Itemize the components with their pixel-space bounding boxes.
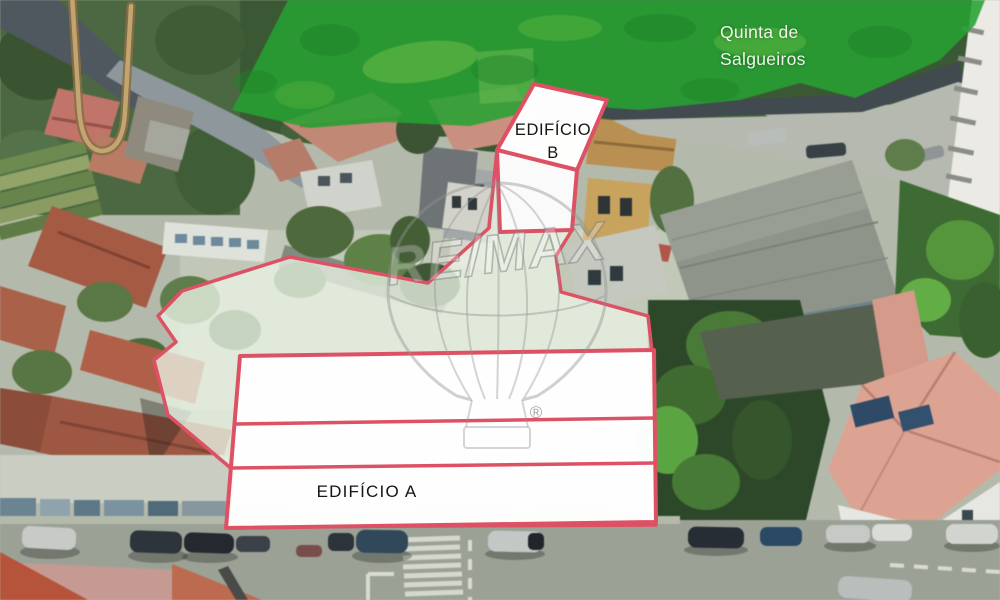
watermark-registered-mark: ® [530, 403, 543, 422]
building-b-label-line2: B [494, 142, 612, 165]
area-label-line2: Salgueiros [720, 46, 840, 73]
area-label-line1: Quinta de [720, 19, 840, 46]
area-label-quinta-de-salgueiros: Quinta de Salgueiros [720, 19, 840, 73]
building-a-label: EDIFÍCIO A [296, 482, 438, 502]
annotated-aerial-photo: RE/MAX ® Quinta de Salgueiros EDIFÍCIO B… [0, 0, 1000, 600]
building-b-label-line1: EDIFÍCIO [494, 119, 612, 142]
building-a-footprint [226, 350, 656, 528]
building-b-label: EDIFÍCIO B [494, 119, 612, 165]
